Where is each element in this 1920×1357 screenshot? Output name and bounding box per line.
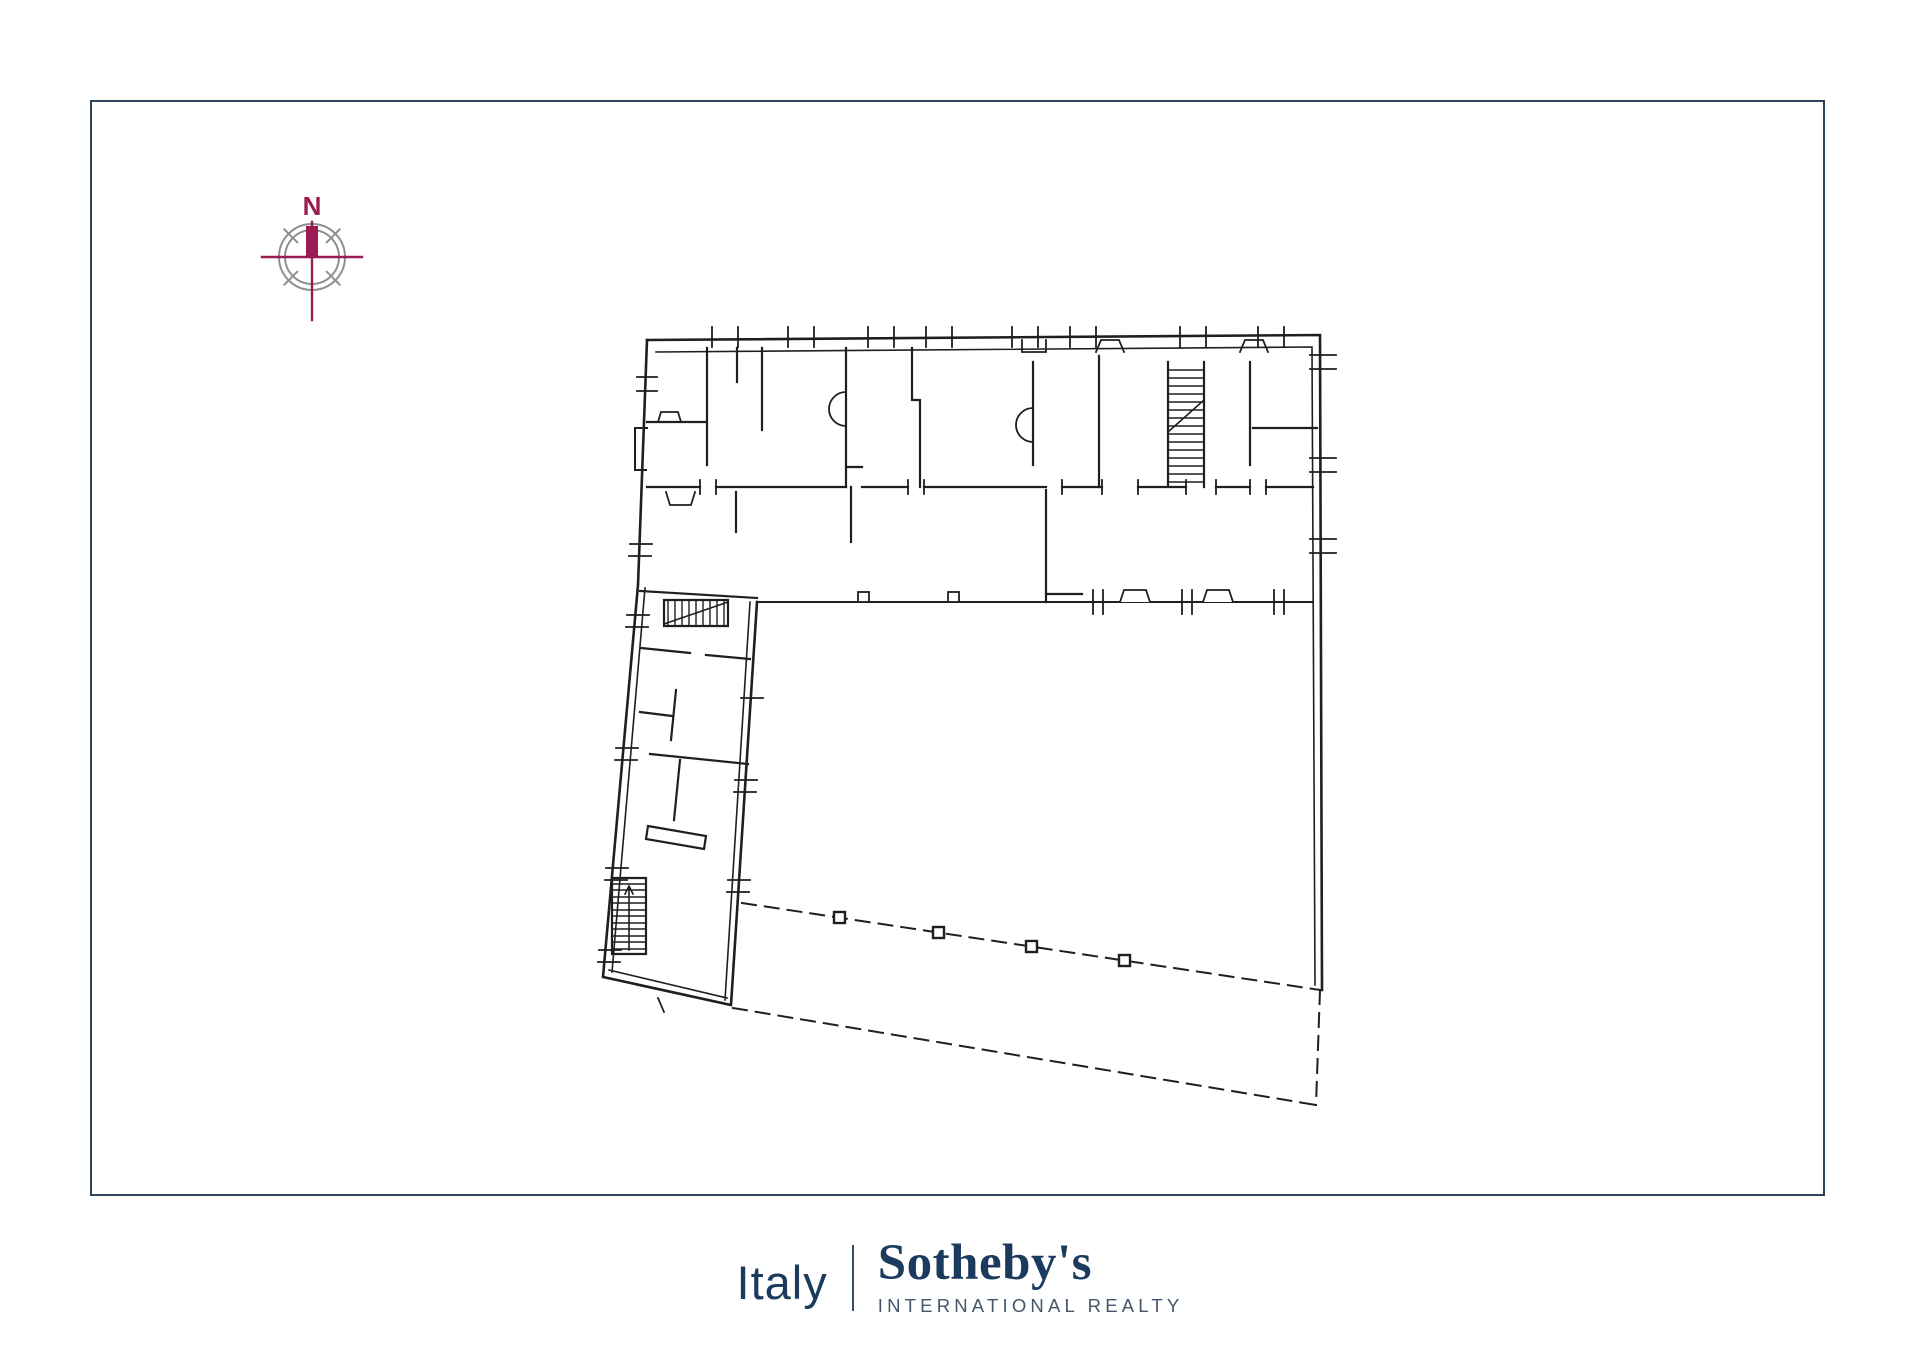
pilaster bbox=[948, 592, 959, 602]
pilaster bbox=[858, 592, 869, 602]
window-ticks bbox=[598, 327, 1336, 962]
boundary-post bbox=[834, 912, 845, 923]
west-wing-interior-walls bbox=[640, 591, 757, 1012]
logo-brand-block: Sotheby's INTERNATIONAL REALTY bbox=[878, 1238, 1184, 1317]
dashed-boundary bbox=[733, 903, 1320, 1105]
logo-subtitle: INTERNATIONAL REALTY bbox=[878, 1295, 1184, 1317]
staircase-north-wing bbox=[1168, 362, 1204, 487]
boundary-post bbox=[1119, 955, 1130, 966]
brand-logo: Italy Sotheby's INTERNATIONAL REALTY bbox=[0, 1238, 1920, 1317]
compass-needle bbox=[306, 226, 318, 257]
logo-divider bbox=[852, 1245, 854, 1311]
boundary-post bbox=[933, 927, 944, 938]
boundary-post bbox=[1026, 941, 1037, 952]
compass-north-label: N bbox=[303, 191, 322, 221]
staircase-junction bbox=[664, 600, 728, 626]
logo-brand-name: Sotheby's bbox=[878, 1238, 1092, 1289]
logo-region-label: Italy bbox=[737, 1245, 828, 1310]
floor-plan-canvas: N bbox=[0, 0, 1920, 1357]
compass-rose: N bbox=[262, 191, 362, 320]
north-wing-interior-walls bbox=[647, 340, 1317, 602]
building-exterior-walls bbox=[603, 335, 1322, 1005]
staircase-west-wing bbox=[612, 878, 646, 954]
